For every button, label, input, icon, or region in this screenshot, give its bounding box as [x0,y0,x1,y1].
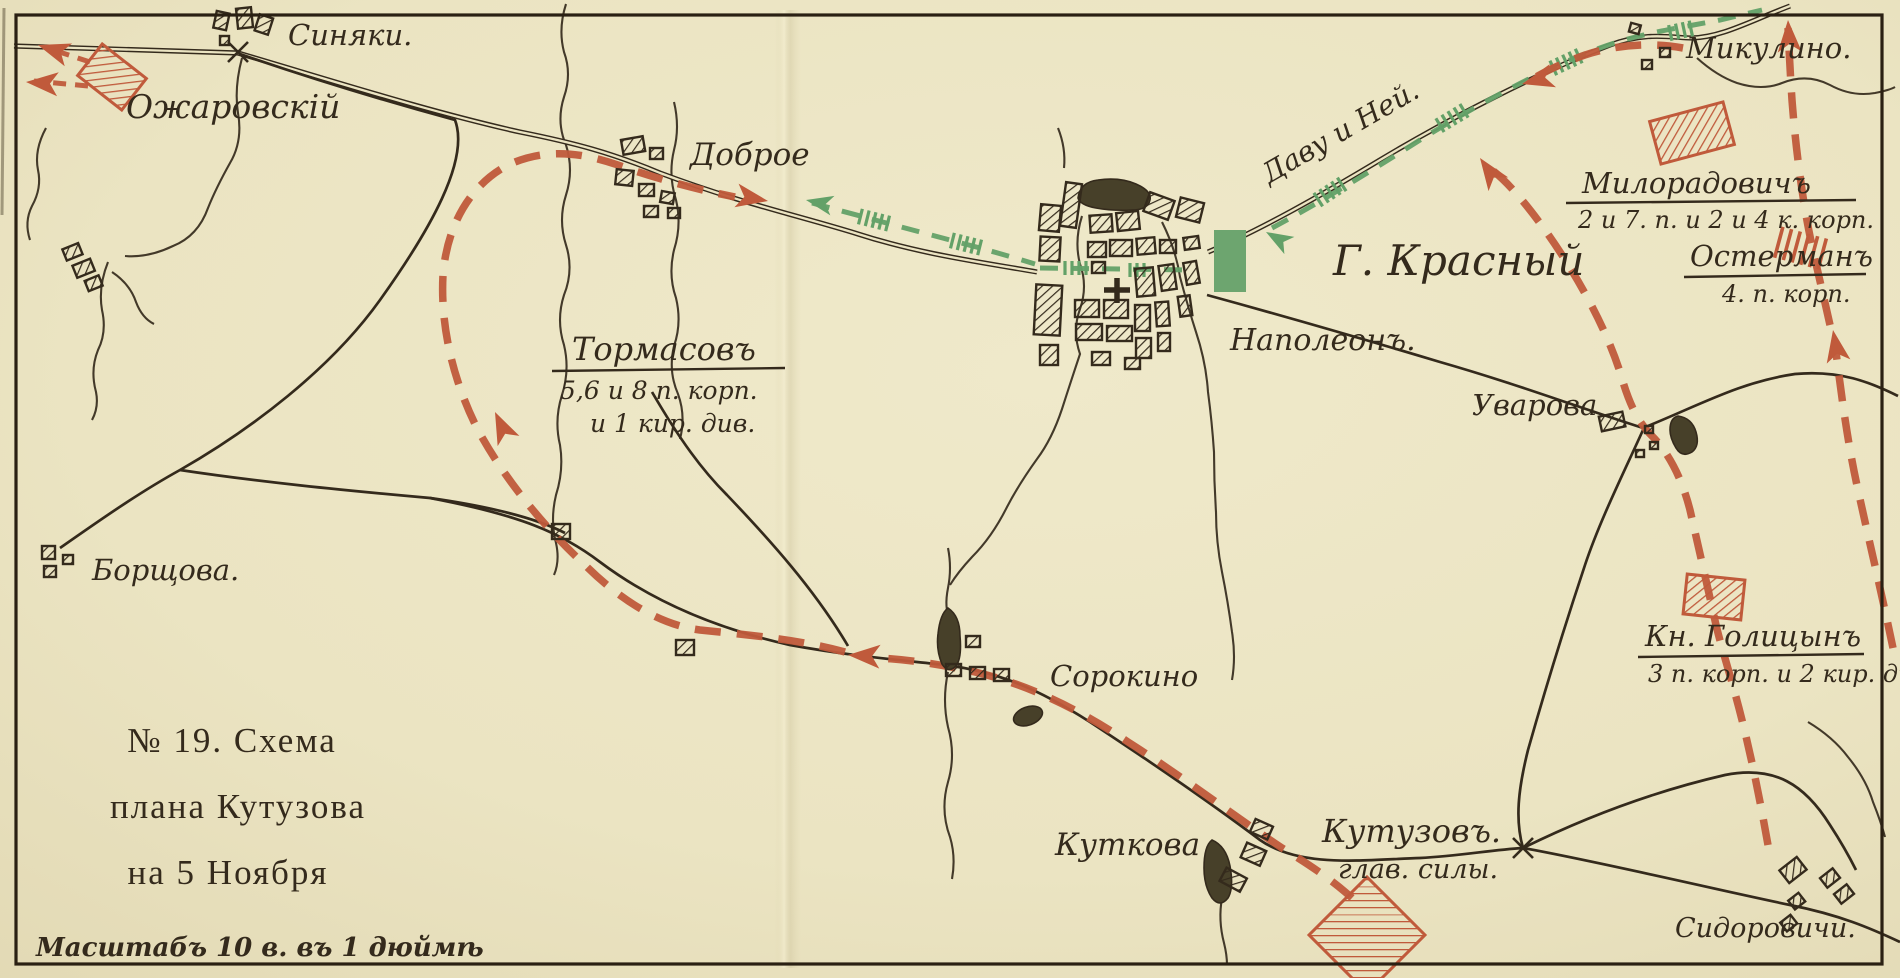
historical-map-page: Синяки. Ожаровскій Доброе Борщова. Торма… [0,0,1900,978]
map-title-line3: на 5 Ноября [128,853,329,892]
label-miloradovich: Милорадовичъ [1581,166,1811,200]
label-ostermann: Остерманъ [1690,239,1873,273]
label-borshchova: Борщова. [91,553,239,587]
map-title-line1: № 19. Схема [127,721,337,760]
scan-edge-mark [2,8,4,215]
label-tormasov-div: и 1 кир. див. [590,409,755,438]
label-golitsyn: Кн. Голицынъ [1644,619,1861,653]
french-guard-position-marker [1214,230,1246,292]
label-ozharovsky: Ожаровскій [126,87,340,126]
label-kutkova: Куткова [1054,827,1200,863]
label-napoleon: Наполеонъ. [1229,323,1416,358]
map-canvas: Синяки. Ожаровскій Доброе Борщова. Торма… [0,0,1900,978]
label-sorokino: Сорокино [1050,659,1198,693]
village-square [676,640,694,655]
label-tormasov: Тормасовъ [572,330,756,368]
unit-golitsyn-marker [1683,574,1745,620]
label-kutuzov: Кутузовъ. [1321,812,1501,850]
label-mikulino: Микулино. [1685,31,1851,65]
village-square [552,524,570,539]
map-title-line2: плана Кутузова [110,787,366,826]
label-ostermann-corps: 4. п. корп. [1721,280,1850,308]
label-sidorovichi: Сидоровичи. [1675,913,1856,944]
label-dobroe: Доброе [688,137,810,173]
label-golitsyn-corps: 3 п. корп. и 2 кир. див [1648,660,1900,688]
pond [938,608,961,670]
label-kutuzov-main-forces: глав. силы. [1338,854,1498,885]
label-tormasov-corps: 5,6 и 8 п. корп. [560,376,758,405]
map-scale-note: Масштабъ 10 в. въ 1 дюймѣ [35,933,484,963]
label-uvarova: Уварова [1472,388,1597,422]
label-sinyaki: Синяки. [288,18,412,52]
label-krasny: Г. Красный [1332,236,1584,285]
label-miloradovich-corps: 2 и 7. п. и 2 и 4 к. корп. [1577,206,1874,234]
